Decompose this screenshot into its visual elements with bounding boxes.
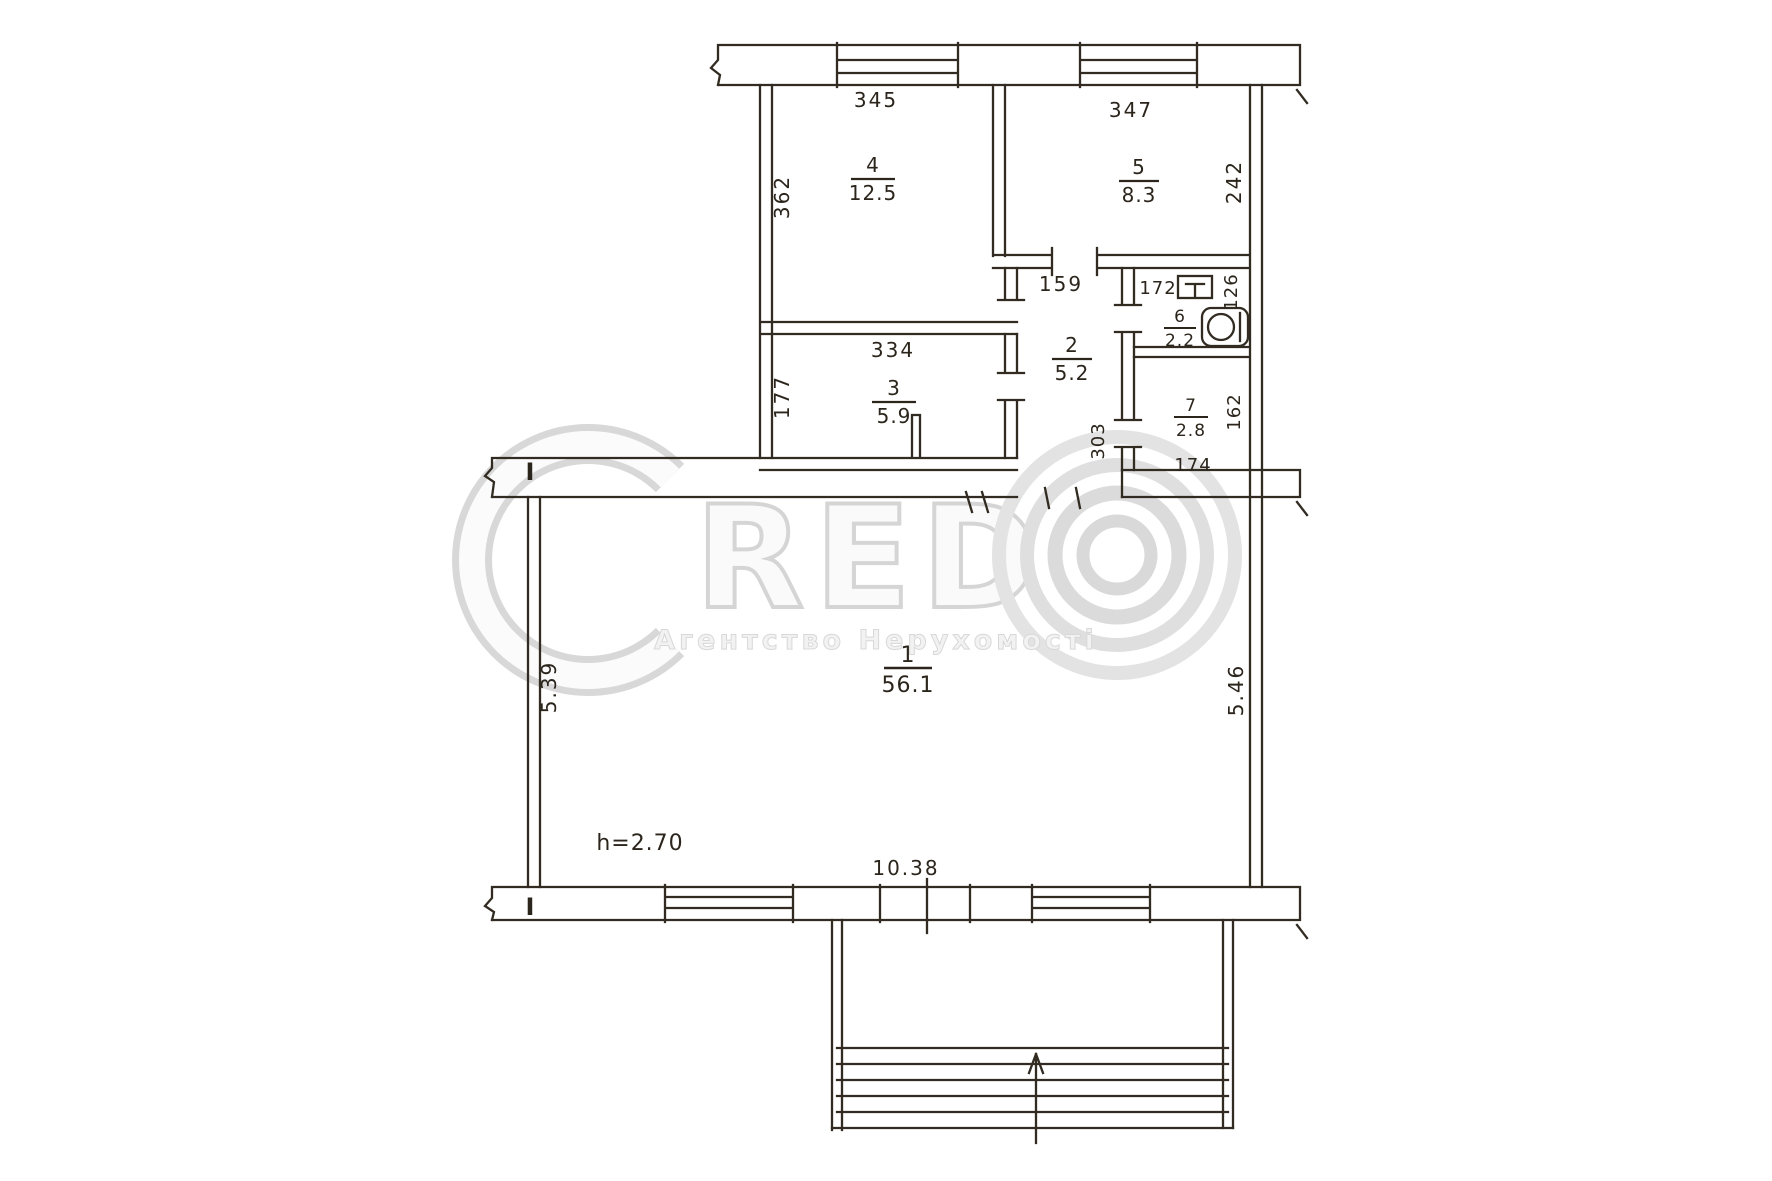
floor-plan-page: RED Агентство Нерухомості <box>0 0 1772 1181</box>
entrance-direction-arrow-icon <box>1029 1054 1043 1143</box>
dim-room4-left: 362 <box>770 175 794 219</box>
room-number: 4 <box>866 153 880 177</box>
room-5-label: 5 8.3 <box>1119 155 1159 207</box>
dim-room6-right: 126 <box>1221 273 1242 310</box>
section-mark-bottom: I <box>526 893 535 921</box>
dim-room7-bottom: 174 <box>1174 455 1211 476</box>
stairs <box>832 1048 1233 1128</box>
bottom-exterior-wall <box>485 887 1307 938</box>
dim-room1-right: 5.46 <box>1224 664 1248 717</box>
dim-room1-bottom: 10.38 <box>872 856 939 880</box>
room-area: 12.5 <box>849 181 898 205</box>
room-6-label: 6 2.2 <box>1164 307 1196 351</box>
dim-room6-top: 172 <box>1139 278 1176 299</box>
dim-room3-top: 334 <box>871 338 915 362</box>
dim-room5-right: 242 <box>1222 160 1246 204</box>
top-wall-windows <box>837 43 1197 87</box>
toilet-icon <box>1202 308 1248 346</box>
room-3-label: 3 5.9 <box>872 376 916 428</box>
room-7-label: 7 2.8 <box>1174 396 1208 441</box>
room-number: 7 <box>1185 396 1197 416</box>
section-mark-top: I <box>526 458 535 486</box>
room-number: 6 <box>1174 307 1186 327</box>
ceiling-height-note: h=2.70 <box>596 831 683 856</box>
dim-room4-top: 345 <box>854 88 898 112</box>
dim-room7-right: 162 <box>1224 393 1245 430</box>
room-4-label: 4 12.5 <box>849 153 898 205</box>
room-area: 56.1 <box>882 673 935 698</box>
room-area: 2.8 <box>1176 421 1206 441</box>
room-area: 2.2 <box>1165 331 1195 351</box>
room-number: 5 <box>1132 155 1146 179</box>
dim-room3-left: 177 <box>770 375 794 419</box>
credo-watermark: RED Агентство Нерухомості <box>472 437 1235 676</box>
watermark-agency-text: Агентство Нерухомості <box>654 625 1098 656</box>
watermark-letter-c-icon <box>472 444 670 676</box>
dim-room2-top: 159 <box>1039 272 1083 296</box>
toilet-cistern-icon <box>1178 276 1212 298</box>
room-number: 2 <box>1065 333 1079 357</box>
dim-room5-top: 347 <box>1109 98 1153 122</box>
dim-room2-right: 303 <box>1088 422 1109 459</box>
top-exterior-wall <box>711 45 1307 103</box>
room-area: 8.3 <box>1122 183 1157 207</box>
floor-plan-drawing: RED Агентство Нерухомості <box>0 0 1772 1181</box>
room-2-label: 2 5.2 <box>1052 333 1092 385</box>
room-area: 5.2 <box>1055 361 1090 385</box>
room-number: 1 <box>901 643 916 668</box>
porch-walls <box>832 920 1233 1130</box>
room-number: 3 <box>887 376 901 400</box>
dim-room1-left: 5.39 <box>537 661 561 714</box>
room-area: 5.9 <box>877 404 912 428</box>
